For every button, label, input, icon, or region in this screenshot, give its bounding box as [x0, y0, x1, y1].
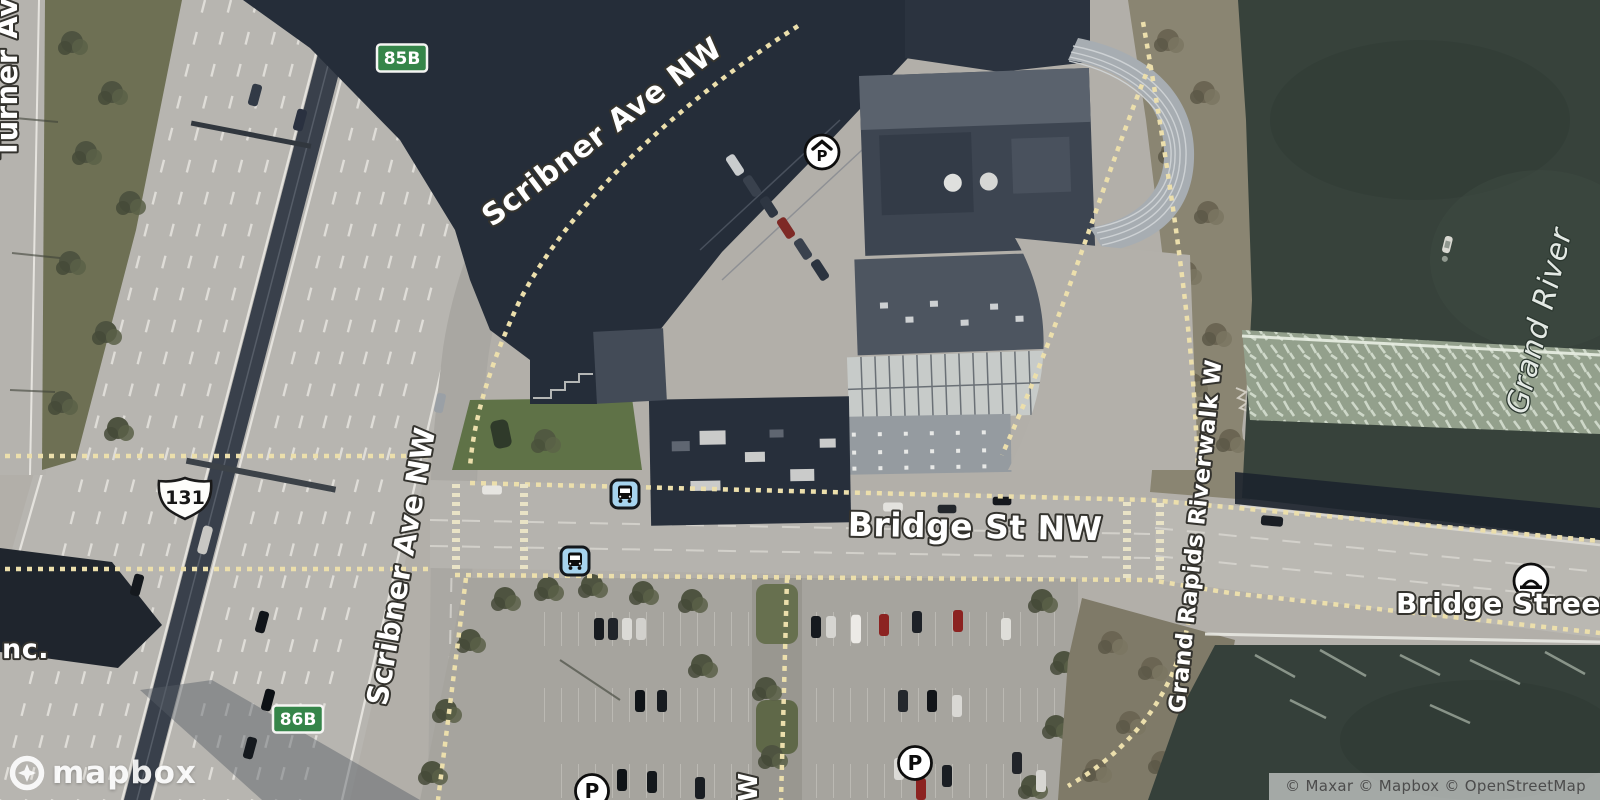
map-attribution[interactable]: © Maxar © Mapbox © OpenStreetMap [1269, 773, 1600, 800]
poi-label-bridge-street-bridge: Bridge Street Bri [1396, 587, 1600, 620]
street-label-w-partial: W [734, 772, 764, 800]
covered-parking-letter: P [817, 147, 828, 165]
shield-us-131-text: 131 [165, 487, 205, 509]
parking-letter: P [585, 779, 600, 800]
map-viewport[interactable]: 85B 86B 131 P P P [0, 0, 1600, 800]
parking-icon[interactable]: P [576, 775, 609, 800]
mapbox-logo-text: mapbox [52, 755, 197, 791]
street-label-bridge-st: Bridge St NW [847, 505, 1103, 548]
shield-85b-text: 85B [384, 49, 421, 69]
poi-label-nc-partial: nc. [2, 634, 49, 665]
shield-86b: 86B [273, 706, 323, 733]
south-parking-lot [418, 574, 1080, 800]
parking-letter: P [908, 751, 923, 775]
covered-parking-icon[interactable]: P [805, 135, 839, 169]
shield-85b: 85B [377, 45, 427, 72]
parking-icon[interactable]: P [899, 747, 932, 780]
attribution-text: © Maxar © Mapbox © OpenStreetMap [1285, 777, 1586, 795]
shield-86b-text: 86B [280, 710, 317, 730]
mapbox-logo[interactable]: mapbox [8, 754, 197, 792]
street-label-turner-ave: Turner Av [0, 0, 24, 159]
bus-stop-icon[interactable] [611, 480, 639, 508]
bus-stop-icon[interactable] [561, 547, 589, 575]
map-canvas[interactable]: 85B 86B 131 P P P [0, 0, 1600, 800]
mapbox-logo-icon [8, 754, 46, 792]
